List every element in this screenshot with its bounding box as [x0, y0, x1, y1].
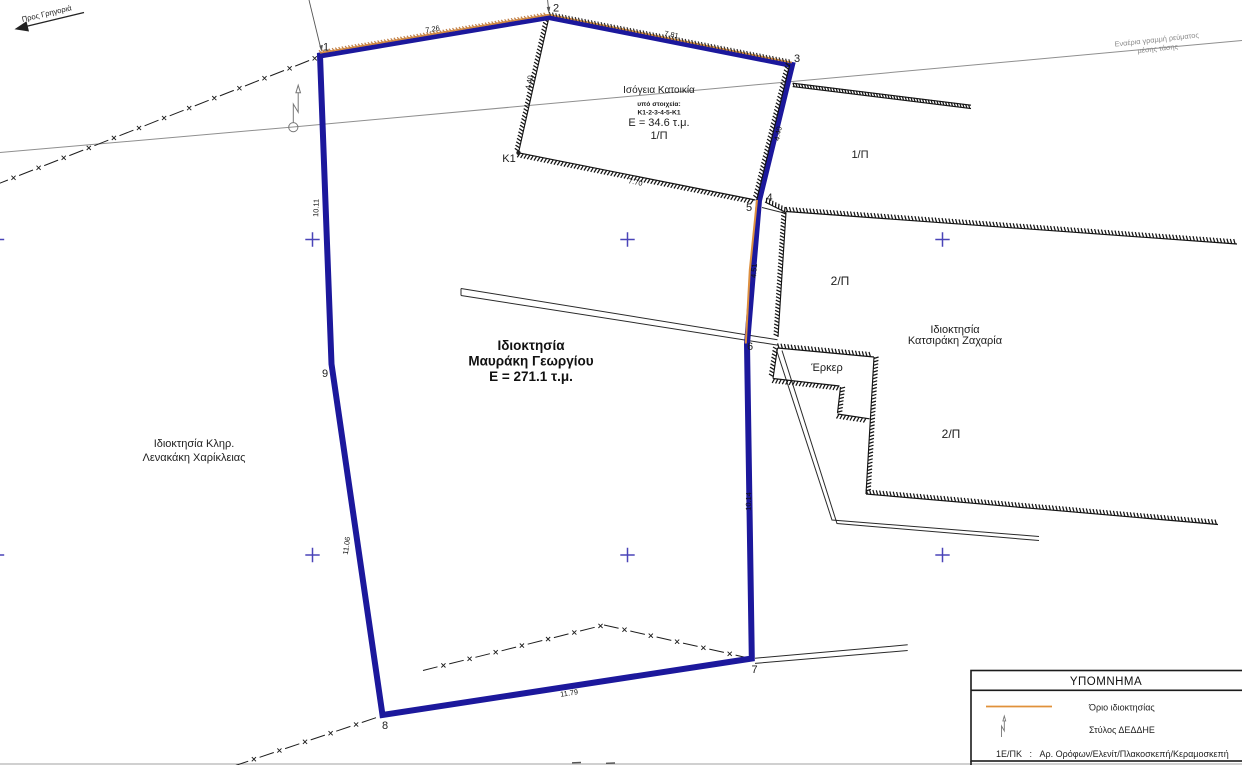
svg-text:9: 9	[322, 368, 328, 380]
svg-text:Μαυράκη Γεωργίου: Μαυράκη Γεωργίου	[468, 354, 593, 369]
svg-text:7: 7	[751, 664, 757, 676]
svg-text:Λενακάκη Χαρίκλειας: Λενακάκη Χαρίκλειας	[143, 452, 246, 464]
svg-text:2/Π: 2/Π	[942, 427, 961, 441]
svg-text:Ισόγεια Κατοικία: Ισόγεια Κατοικία	[623, 84, 695, 96]
svg-text:1: 1	[323, 42, 329, 54]
svg-text:8: 8	[382, 720, 388, 732]
svg-text:Στύλος ΔΕΔΔΗΕ: Στύλος ΔΕΔΔΗΕ	[1089, 725, 1155, 735]
svg-text:4: 4	[766, 192, 772, 204]
svg-text:Ε = 34.6 τ.μ.: Ε = 34.6 τ.μ.	[628, 117, 689, 129]
svg-text:5: 5	[746, 202, 752, 214]
svg-text:1/Π: 1/Π	[650, 130, 667, 142]
svg-text:Κατσιράκη Ζαχαρία: Κατσιράκη Ζαχαρία	[908, 335, 1003, 347]
svg-text:Κ1-2-3-4-5-Κ1: Κ1-2-3-4-5-Κ1	[637, 110, 680, 117]
svg-text:ΥΠΟΜΝΗΜΑ: ΥΠΟΜΝΗΜΑ	[1070, 676, 1142, 688]
svg-text:2: 2	[553, 3, 559, 15]
svg-text:2/Π: 2/Π	[831, 274, 850, 288]
svg-text:3: 3	[794, 53, 800, 65]
svg-text:4.51: 4.51	[749, 263, 759, 278]
svg-text:10.11: 10.11	[311, 199, 321, 217]
svg-text:1/Π: 1/Π	[851, 149, 868, 161]
svg-text:Έρκερ: Έρκερ	[810, 362, 843, 374]
svg-text:Ε = 271.1 τ.μ.: Ε = 271.1 τ.μ.	[489, 369, 573, 384]
svg-text:10.14: 10.14	[744, 492, 753, 511]
svg-text:Κ1: Κ1	[502, 153, 515, 165]
svg-text:υπό στοιχεία:: υπό στοιχεία:	[637, 101, 681, 108]
svg-text:1Ε/ΠΚ : Αρ. Ορόφων/Ελενίτ/: 1Ε/ΠΚ : Αρ. Ορόφων/Ελενίτ/Πλακοσκεπή/Κερ…	[996, 749, 1229, 759]
svg-text:6: 6	[747, 341, 753, 353]
svg-text:Όριο ιδιοκτησίας: Όριο ιδιοκτησίας	[1088, 703, 1155, 713]
svg-text:Ιδιοκτησία: Ιδιοκτησία	[497, 338, 565, 353]
svg-text:Ιδιοκτησία Κληρ.: Ιδιοκτησία Κληρ.	[154, 438, 235, 450]
